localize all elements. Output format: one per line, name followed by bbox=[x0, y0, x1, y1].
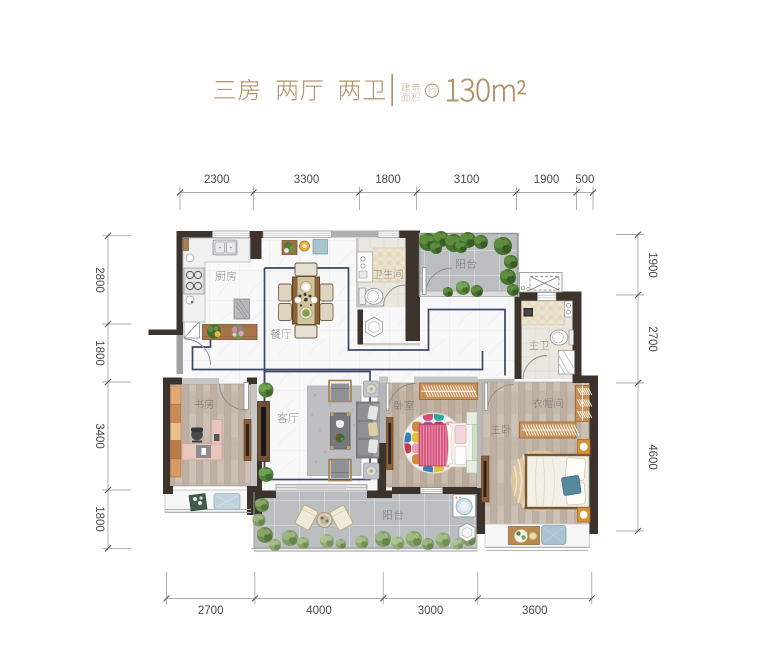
svg-text:2700: 2700 bbox=[646, 326, 658, 352]
svg-text:1800: 1800 bbox=[93, 340, 105, 366]
svg-text:1900: 1900 bbox=[646, 252, 658, 278]
svg-text:1800: 1800 bbox=[375, 174, 401, 186]
svg-text:4600: 4600 bbox=[646, 444, 658, 470]
svg-text:1800: 1800 bbox=[93, 506, 105, 532]
svg-text:3400: 3400 bbox=[93, 423, 105, 449]
svg-text:3100: 3100 bbox=[454, 174, 480, 186]
svg-text:2300: 2300 bbox=[204, 174, 230, 186]
svg-text:2700: 2700 bbox=[198, 605, 224, 617]
svg-text:3300: 3300 bbox=[294, 174, 320, 186]
svg-text:1900: 1900 bbox=[534, 174, 560, 186]
svg-text:3000: 3000 bbox=[418, 605, 444, 617]
svg-text:500: 500 bbox=[575, 174, 594, 186]
svg-text:2800: 2800 bbox=[93, 267, 105, 293]
svg-text:4000: 4000 bbox=[306, 605, 332, 617]
svg-text:3600: 3600 bbox=[522, 605, 548, 617]
